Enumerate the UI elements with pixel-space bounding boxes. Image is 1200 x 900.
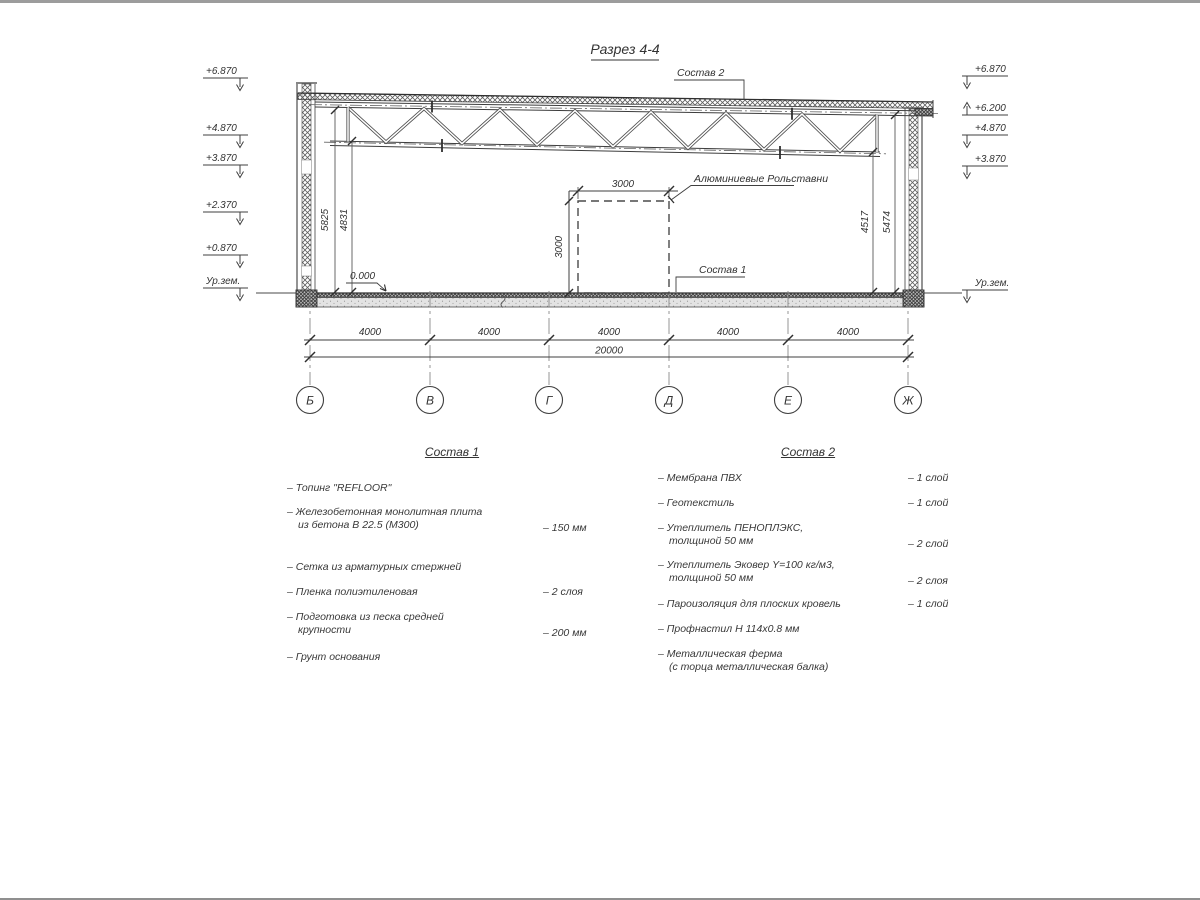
item-text: – Подготовка из песка средней <box>287 611 444 623</box>
sostav1-title: Состав 1 <box>425 445 479 459</box>
item-text-line2: из бетона В 22.5 (М300) <box>298 519 482 532</box>
item-text: – Сетка из арматурных стержней <box>287 561 461 573</box>
vdim-5825: 5825 <box>320 208 331 231</box>
axis-label-b: Б <box>306 394 314 408</box>
list-item: – Профнастил Н 114х0.8 мм <box>658 623 800 636</box>
elev-right-4870: +4.870 <box>975 123 1006 134</box>
roof-truss <box>324 107 886 159</box>
bay-dim-4: 4000 <box>717 327 740 338</box>
item-value: – 2 слой <box>908 538 948 551</box>
item-value: – 2 слоя <box>908 575 948 588</box>
item-text: – Пленка полиэтиленовая <box>287 586 418 598</box>
list-item: – Утеплитель ПЕНОПЛЭКС,толщиной 50 мм <box>658 522 803 547</box>
door-width-dim: 3000 <box>612 179 635 190</box>
dimension-chain: 4000 4000 4000 4000 4000 20000 <box>304 327 914 362</box>
section-title: Разрез 4-4 <box>590 41 660 57</box>
item-text: – Грунт основания <box>287 651 380 663</box>
elev-left-2370: +2.370 <box>206 200 237 211</box>
drawing-title: Разрез 4-4 <box>590 41 660 60</box>
sostav2-title: Состав 2 <box>781 445 835 459</box>
list-item: – Пленка полиэтиленовая <box>287 586 418 599</box>
bay-dim-5: 4000 <box>837 327 860 338</box>
item-text: – Профнастил Н 114х0.8 мм <box>658 623 800 635</box>
left-wall-footing <box>296 290 317 307</box>
floor-slab <box>296 293 924 308</box>
item-text-line2: (с торца металлическая балка) <box>669 661 828 674</box>
item-text-line2: крупности <box>298 624 444 637</box>
left-wall <box>296 83 317 293</box>
axis-bubbles: Б В Г Д Е Ж <box>297 387 922 414</box>
elev-left-0870: +0.870 <box>206 243 237 254</box>
list-item: – Топинг "REFLOOR" <box>287 482 391 495</box>
item-value: – 2 слоя <box>543 586 583 599</box>
door-height-dim: 3000 <box>554 235 565 258</box>
item-text: – Железобетонная монолитная плита <box>287 506 482 518</box>
elevation-labels-right: +6.870 +6.200 +4.870 +3.870 Ур.зем. <box>974 64 1009 289</box>
item-value: – 1 слой <box>908 497 948 510</box>
vdim-5474: 5474 <box>882 210 893 233</box>
axis-label-zh: Ж <box>901 394 914 408</box>
end-beam-section <box>915 109 933 116</box>
item-value: – 1 слой <box>908 472 948 485</box>
bay-dim-1: 4000 <box>359 327 382 338</box>
list-item: – Пароизоляция для плоских кровель <box>658 598 841 611</box>
elevation-marks-left <box>203 78 248 301</box>
zero-level-label: 0.000 <box>350 271 375 282</box>
bay-dim-2: 4000 <box>478 327 501 338</box>
elev-left-ground: Ур.зем. <box>205 276 240 287</box>
list-item: – Мембрана ПВХ <box>658 472 742 485</box>
list-item: – Железобетонная монолитная плитаиз бето… <box>287 506 482 531</box>
bay-dim-3: 4000 <box>598 327 621 338</box>
list-item: – Металлическая ферма(с торца металличес… <box>658 648 828 673</box>
list-item: – Подготовка из песка среднейкрупности <box>287 611 444 636</box>
elev-right-6870: +6.870 <box>975 64 1006 75</box>
elevation-labels-left: +6.870 +4.870 +3.870 +2.370 +0.870 Ур.зе… <box>205 66 240 287</box>
item-text: – Утеплитель ПЕНОПЛЭКС, <box>658 522 803 534</box>
roof <box>298 93 938 120</box>
item-text: – Металлическая ферма <box>658 648 782 660</box>
sostav1-callout-label: Состав 1 <box>699 264 746 276</box>
item-text: – Геотекстиль <box>658 497 734 509</box>
elev-right-6200: +6.200 <box>975 103 1006 114</box>
total-dim: 20000 <box>594 346 623 357</box>
item-value: – 1 слой <box>908 598 948 611</box>
elev-left-6870: +6.870 <box>206 66 237 77</box>
list-item: – Утеплитель Эковер Y=100 кг/м3,толщиной… <box>658 559 835 584</box>
sostav1-list: – Топинг "REFLOOR" – Железобетонная моно… <box>287 462 617 692</box>
item-text-line2: толщиной 50 мм <box>669 535 803 548</box>
list-item: – Геотекстиль <box>658 497 734 510</box>
item-text: – Топинг "REFLOOR" <box>287 482 391 494</box>
shutters-callout-label: Алюминиевые Рольставни <box>693 173 828 185</box>
list-item: – Сетка из арматурных стержней <box>287 561 461 574</box>
blueprint-page: Разрез 4-4 <box>0 0 1200 900</box>
item-text-line2: толщиной 50 мм <box>669 572 835 585</box>
sostav2-list: – Мембрана ПВХ – Геотекстиль – Утеплител… <box>658 462 968 692</box>
list-item: – Грунт основания <box>287 651 380 664</box>
item-value: – 200 мм <box>543 627 587 640</box>
right-wall <box>903 108 924 293</box>
item-text: – Утеплитель Эковер Y=100 кг/м3, <box>658 559 835 571</box>
vdim-4517: 4517 <box>860 210 871 233</box>
roller-shutter-door: 3000 3000 <box>554 179 678 297</box>
elev-right-3870: +3.870 <box>975 154 1006 165</box>
elev-right-ground: Ур.зем. <box>974 278 1009 289</box>
item-value: – 150 мм <box>543 522 587 535</box>
elev-left-4870: +4.870 <box>206 123 237 134</box>
axis-label-d: Д <box>663 394 674 408</box>
right-wall-footing <box>903 290 924 307</box>
callout-shutters: Алюминиевые Рольставни <box>668 173 828 203</box>
elev-left-3870: +3.870 <box>206 153 237 164</box>
item-text: – Пароизоляция для плоских кровель <box>658 598 841 610</box>
callout-sostav1: Состав 1 <box>676 264 746 292</box>
sostav2-callout-label: Состав 2 <box>677 67 725 79</box>
axis-label-e: Е <box>784 394 793 408</box>
vdim-4831: 4831 <box>339 209 350 231</box>
item-text: – Мембрана ПВХ <box>658 472 742 484</box>
axis-label-v: В <box>426 394 434 408</box>
callout-sostav2: Состав 2 <box>674 67 744 100</box>
